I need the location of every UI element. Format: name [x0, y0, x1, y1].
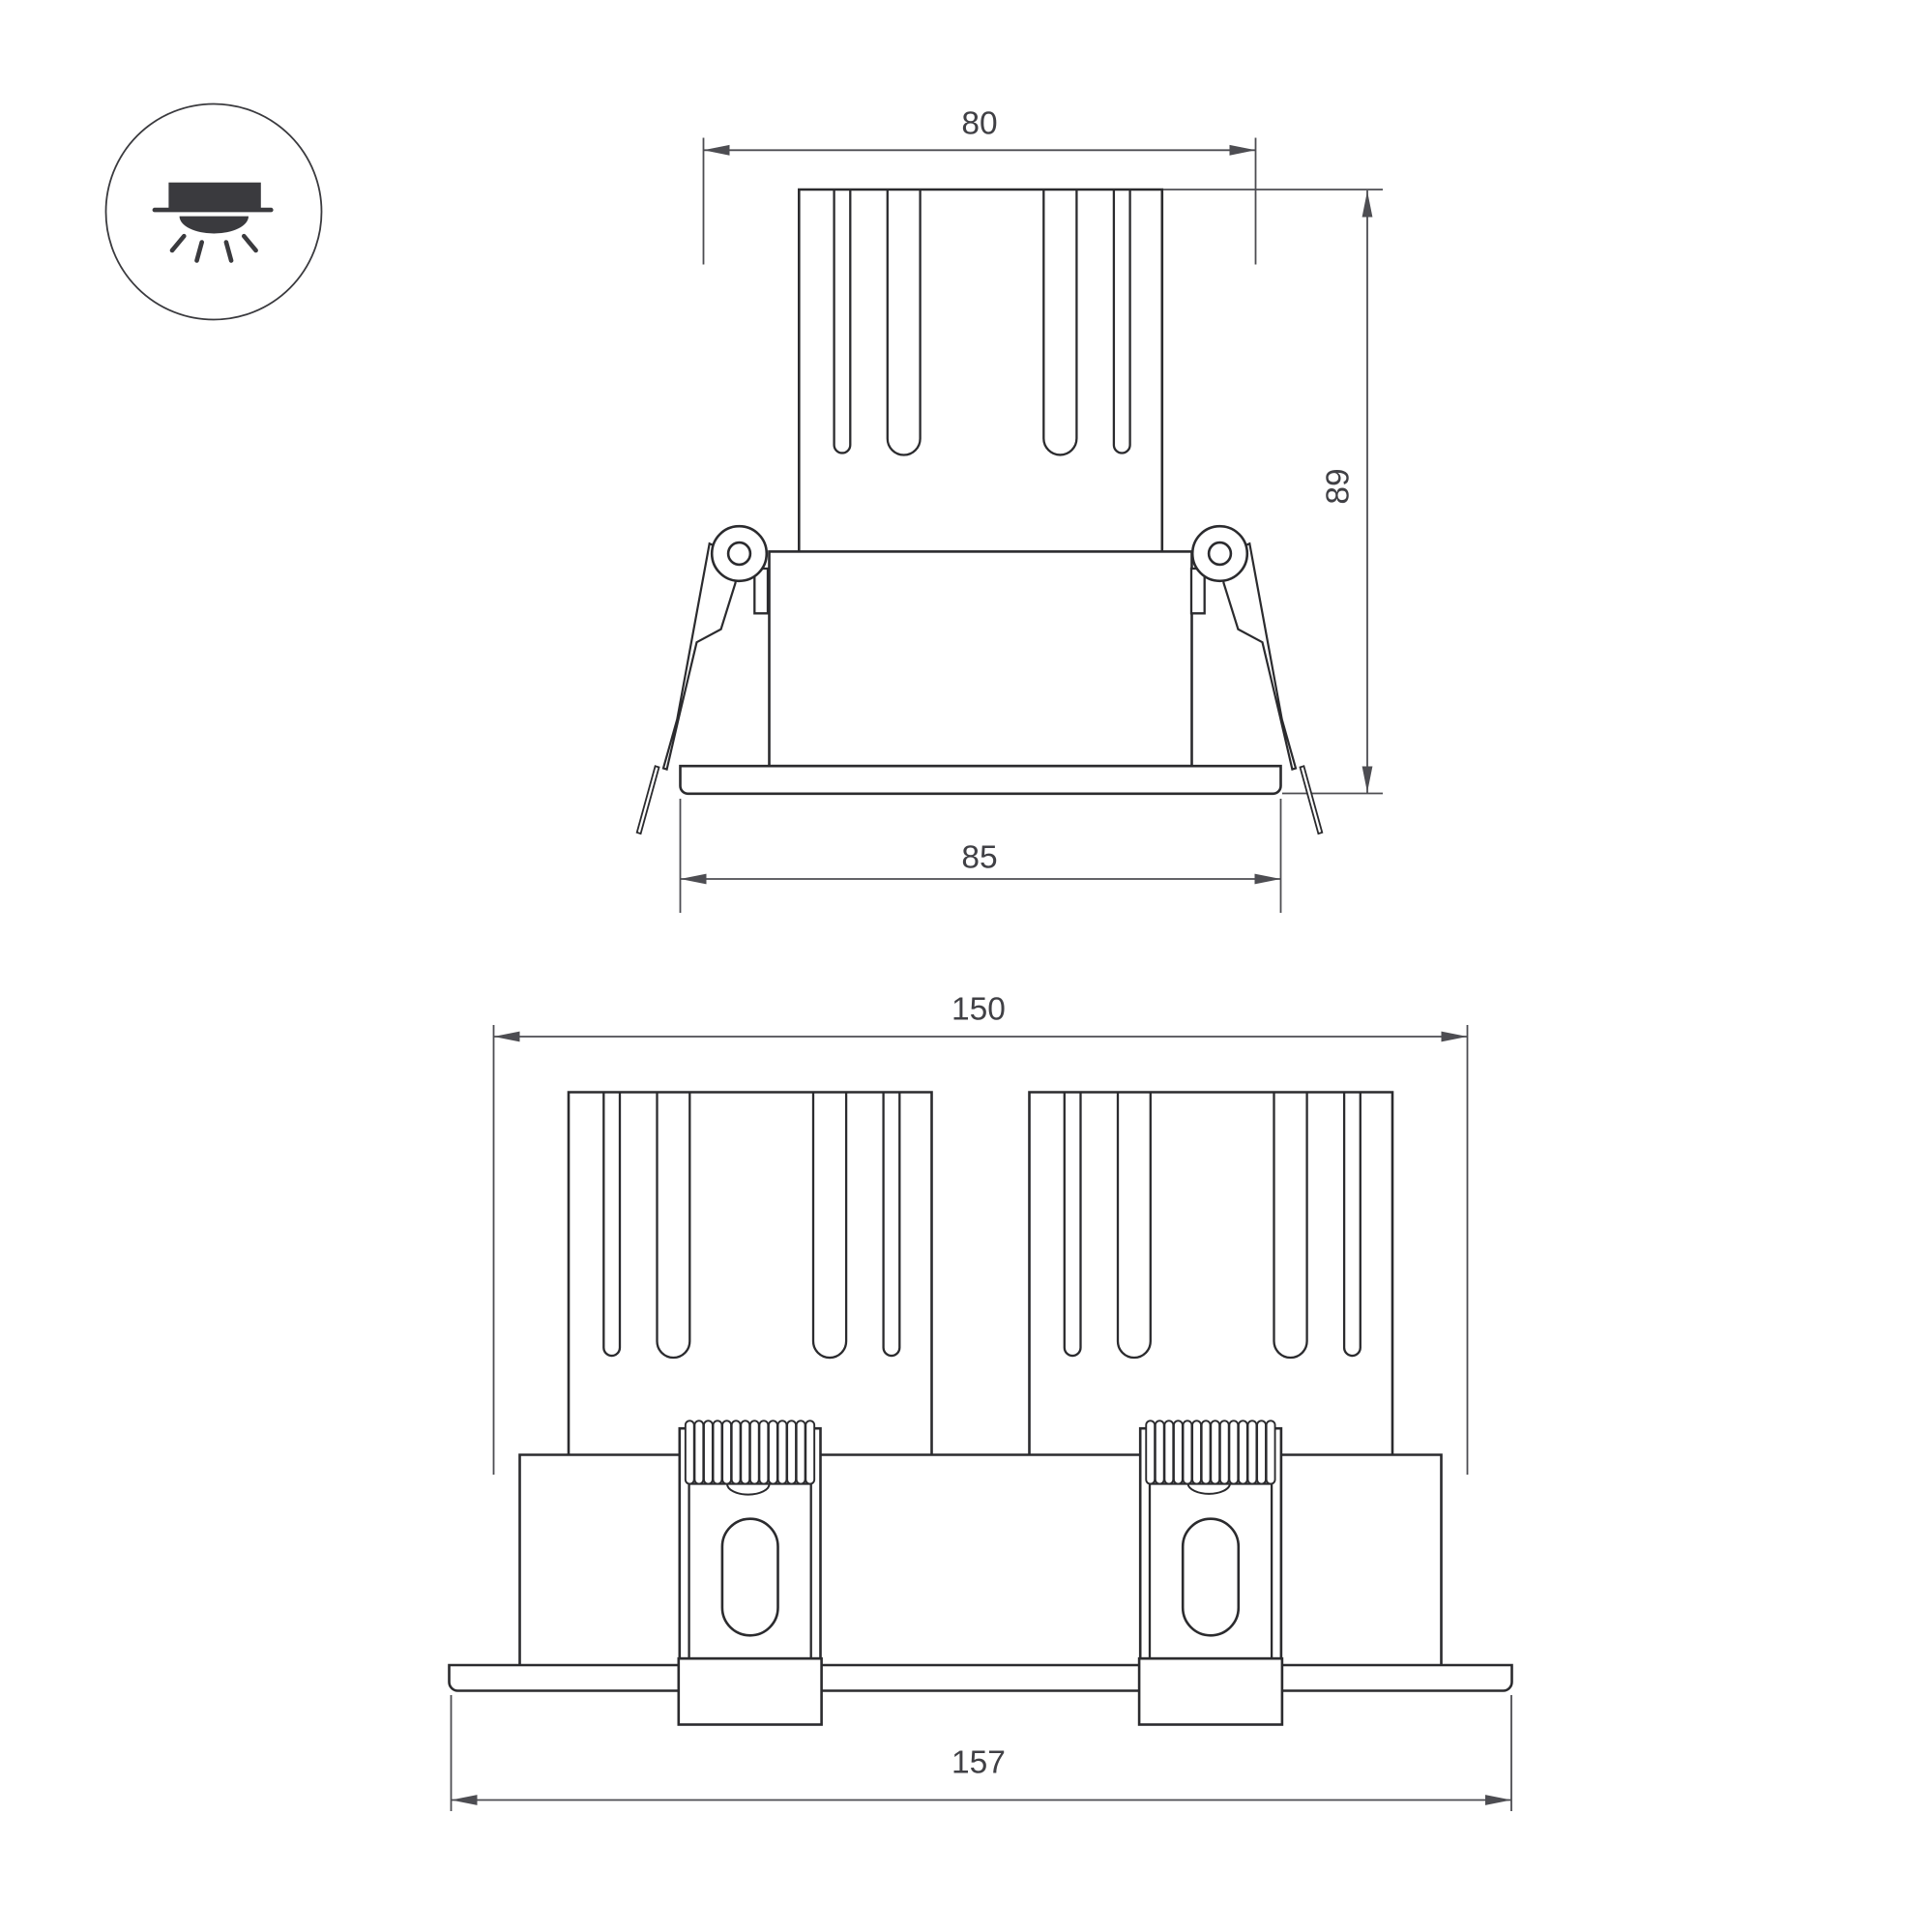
svg-text:157: 157	[951, 1745, 1006, 1781]
svg-text:150: 150	[951, 992, 1006, 1028]
svg-text:85: 85	[961, 840, 997, 876]
svg-text:80: 80	[961, 106, 997, 142]
svg-text:89: 89	[1321, 468, 1357, 504]
